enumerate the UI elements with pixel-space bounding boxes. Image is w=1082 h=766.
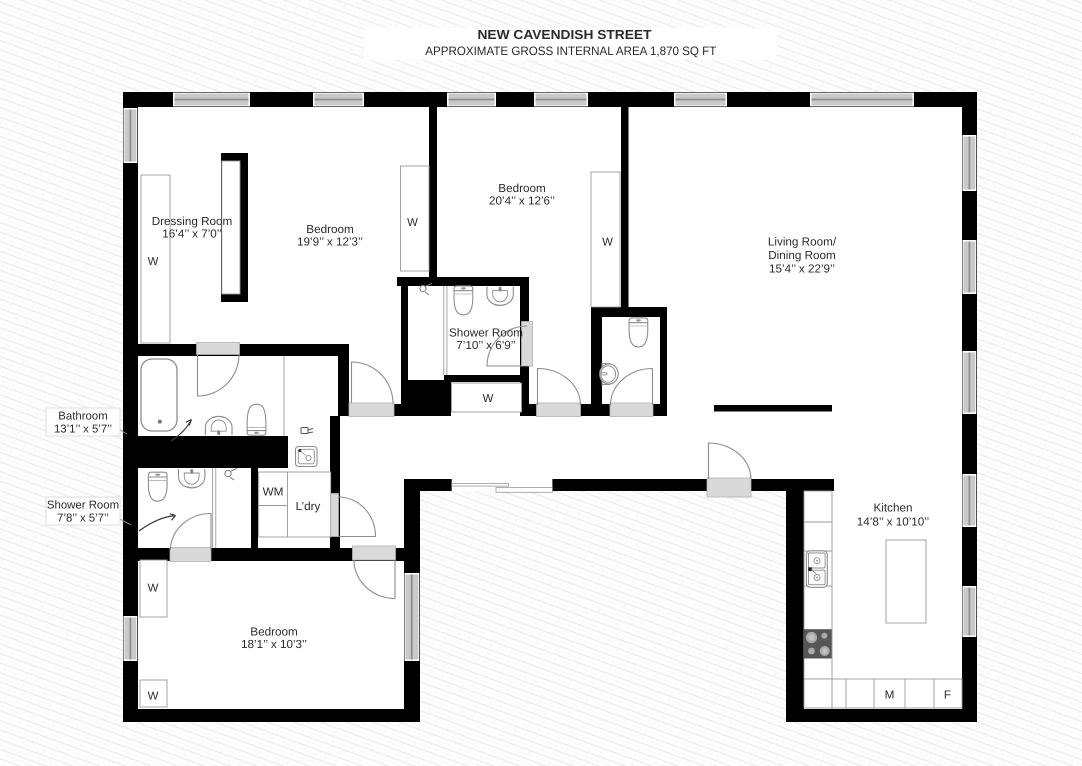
svg-text:18’1’’ x 10’3’’: 18’1’’ x 10’3’’ (241, 638, 307, 651)
svg-text:M: M (885, 689, 895, 702)
svg-text:Kitchen: Kitchen (874, 502, 913, 515)
svg-text:Shower Room: Shower Room (449, 327, 523, 340)
svg-text:L’dry: L’dry (296, 500, 321, 513)
svg-text:Living Room/: Living Room/ (768, 236, 837, 249)
svg-text:W: W (148, 691, 159, 703)
svg-text:15’4’’ x 22’9’’: 15’4’’ x 22’9’’ (769, 263, 835, 276)
svg-text:19’9’’ x 12’3’’: 19’9’’ x 12’3’’ (297, 236, 363, 249)
svg-text:Bedroom: Bedroom (306, 223, 353, 236)
svg-text:W: W (148, 256, 159, 268)
svg-text:WM: WM (263, 486, 284, 499)
svg-text:14’8’’ x 10’10’’: 14’8’’ x 10’10’’ (857, 516, 930, 529)
svg-text:W: W (602, 237, 613, 249)
svg-text:13’1’’ x 5’7’’: 13’1’’ x 5’7’’ (54, 424, 112, 436)
svg-text:7’8’’ x 5’7’’: 7’8’’ x 5’7’’ (57, 513, 109, 525)
svg-text:W: W (407, 217, 418, 229)
svg-text:W: W (148, 583, 159, 595)
svg-text:APPROXIMATE GROSS INTERNAL ARE: APPROXIMATE GROSS INTERNAL AREA 1,870 SQ… (425, 44, 717, 58)
svg-text:16’4’’ x 7’0’’: 16’4’’ x 7’0’’ (162, 228, 222, 241)
svg-text:Bedroom: Bedroom (498, 182, 545, 195)
svg-text:NEW CAVENDISH STREET: NEW CAVENDISH STREET (478, 27, 652, 42)
svg-text:Dining Room: Dining Room (768, 249, 836, 262)
svg-text:Shower Room: Shower Room (47, 500, 119, 512)
svg-text:Dressing Room: Dressing Room (152, 215, 233, 228)
svg-text:F: F (944, 689, 951, 702)
svg-text:Bedroom: Bedroom (250, 626, 297, 639)
svg-text:W: W (483, 393, 494, 405)
svg-text:Bathroom: Bathroom (58, 411, 107, 423)
svg-text:7’10’’ x 6’9’’: 7’10’’ x 6’9’’ (456, 339, 516, 352)
svg-text:20’4’’ x 12’6’’: 20’4’’ x 12’6’’ (489, 195, 555, 208)
